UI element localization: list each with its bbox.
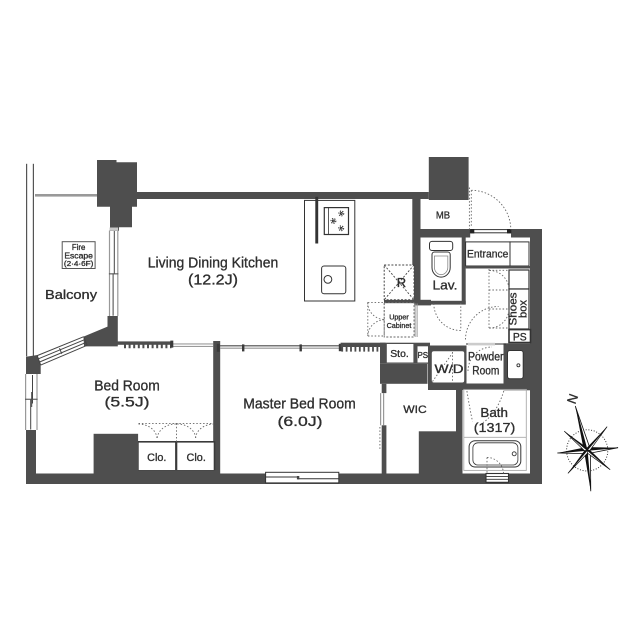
svg-text:Balcony: Balcony: [45, 287, 98, 302]
svg-text:Sto.: Sto.: [390, 348, 409, 360]
svg-text:(5.5J): (5.5J): [105, 394, 150, 410]
svg-text:Lav.: Lav.: [433, 278, 458, 293]
svg-text:box: box: [518, 300, 530, 318]
svg-text:(2·4·6F): (2·4·6F): [64, 261, 94, 268]
svg-text:Escape: Escape: [64, 251, 93, 260]
svg-text:PS: PS: [417, 351, 428, 360]
svg-text:W/D: W/D: [435, 362, 464, 376]
svg-text:Clo.: Clo.: [147, 452, 166, 464]
svg-text:(1317): (1317): [474, 420, 516, 435]
svg-text:MB: MB: [436, 210, 451, 221]
svg-text:Master Bed Room: Master Bed Room: [243, 396, 356, 413]
svg-text:(6.0J): (6.0J): [278, 413, 323, 429]
svg-text:PS: PS: [513, 332, 527, 344]
svg-text:Cabinet: Cabinet: [387, 321, 412, 330]
svg-text:Entrance: Entrance: [467, 249, 508, 261]
svg-text:Room: Room: [472, 366, 499, 378]
svg-text:Bed Room: Bed Room: [94, 378, 160, 395]
svg-text:Powder: Powder: [468, 352, 504, 364]
svg-text:Living Dining Kitchen: Living Dining Kitchen: [148, 255, 279, 272]
svg-text:(12.2J): (12.2J): [188, 273, 238, 289]
svg-text:Bath: Bath: [480, 405, 508, 420]
svg-text:WIC: WIC: [403, 404, 427, 416]
svg-text:R: R: [397, 275, 406, 290]
svg-text:Clo.: Clo.: [187, 452, 206, 464]
